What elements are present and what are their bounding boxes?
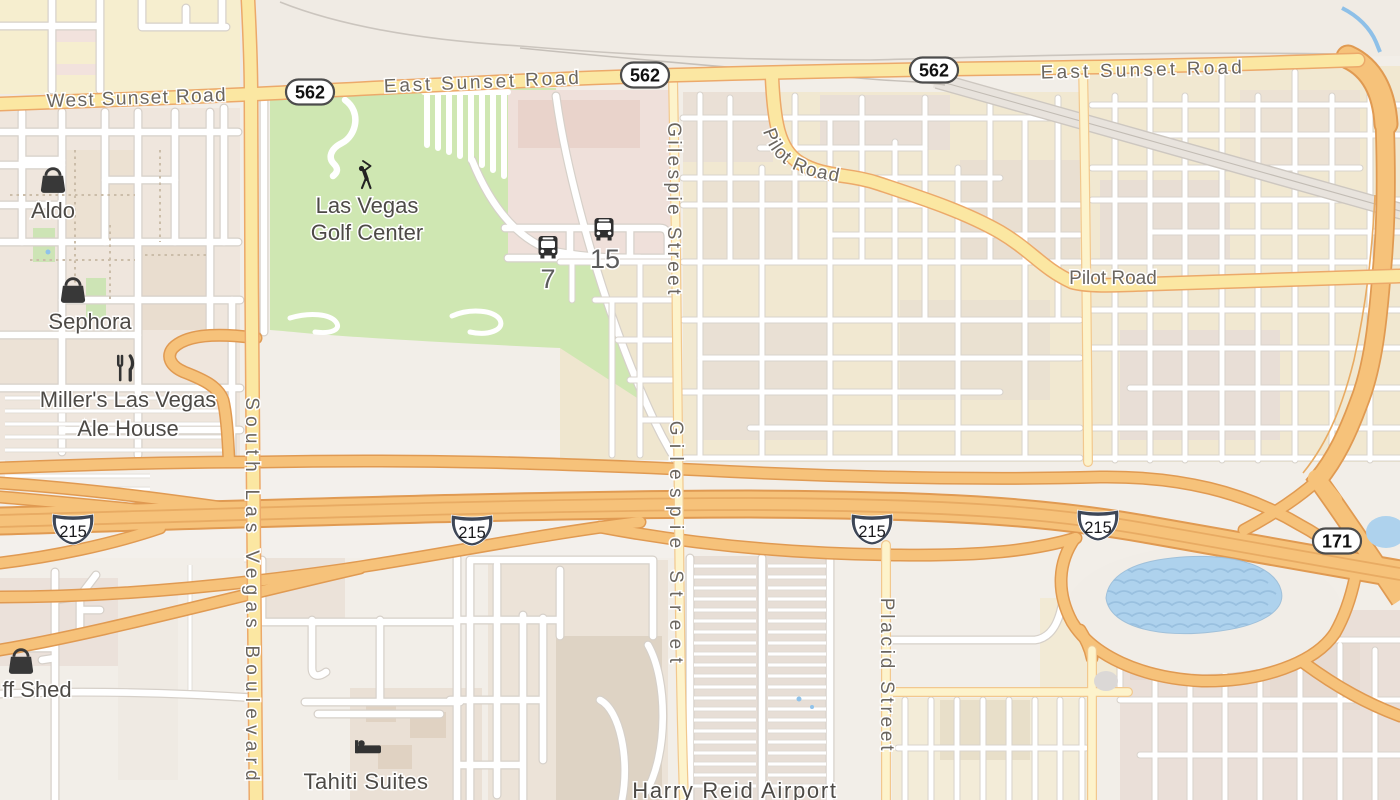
svg-text:Tahiti Suites: Tahiti Suites <box>303 769 428 794</box>
svg-text:171: 171 <box>1322 532 1352 552</box>
svg-text:Aldo: Aldo <box>31 198 75 223</box>
svg-text:Pilot Road: Pilot Road <box>1069 268 1157 289</box>
svg-text:Gilespie Street: Gilespie Street <box>665 421 686 672</box>
svg-text:Golf Center: Golf Center <box>311 220 424 245</box>
svg-text:Harry Reid Airport: Harry Reid Airport <box>632 778 837 800</box>
svg-text:7: 7 <box>540 264 555 294</box>
svg-text:Gilespie Street: Gilespie Street <box>663 122 684 298</box>
svg-text:Sephora: Sephora <box>48 309 132 334</box>
svg-text:Ale House: Ale House <box>77 416 179 441</box>
svg-text:South Las Vegas Boulevard: South Las Vegas Boulevard <box>241 397 262 787</box>
svg-text:Las Vegas: Las Vegas <box>316 193 419 218</box>
svg-text:ff Shed: ff Shed <box>2 677 71 702</box>
svg-text:15: 15 <box>590 244 620 274</box>
svg-text:Placid Street: Placid Street <box>876 598 897 754</box>
svg-text:Miller's Las Vegas: Miller's Las Vegas <box>40 387 217 412</box>
